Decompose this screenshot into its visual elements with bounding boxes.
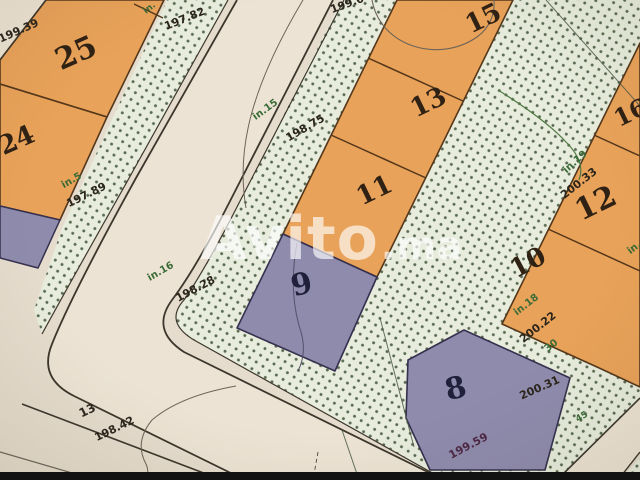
watermark-tld-text: .ma: [381, 224, 464, 268]
bottom-black-bar: [0, 472, 640, 480]
watermark-brand-text: Avito: [200, 204, 379, 274]
subdivision-plan-svg: 25 24 15 13 11 16 12 10 9 8 199.39 197.8…: [0, 0, 640, 480]
plan-photo: 25 24 15 13 11 16 12 10 9 8 199.39 197.8…: [0, 0, 640, 480]
